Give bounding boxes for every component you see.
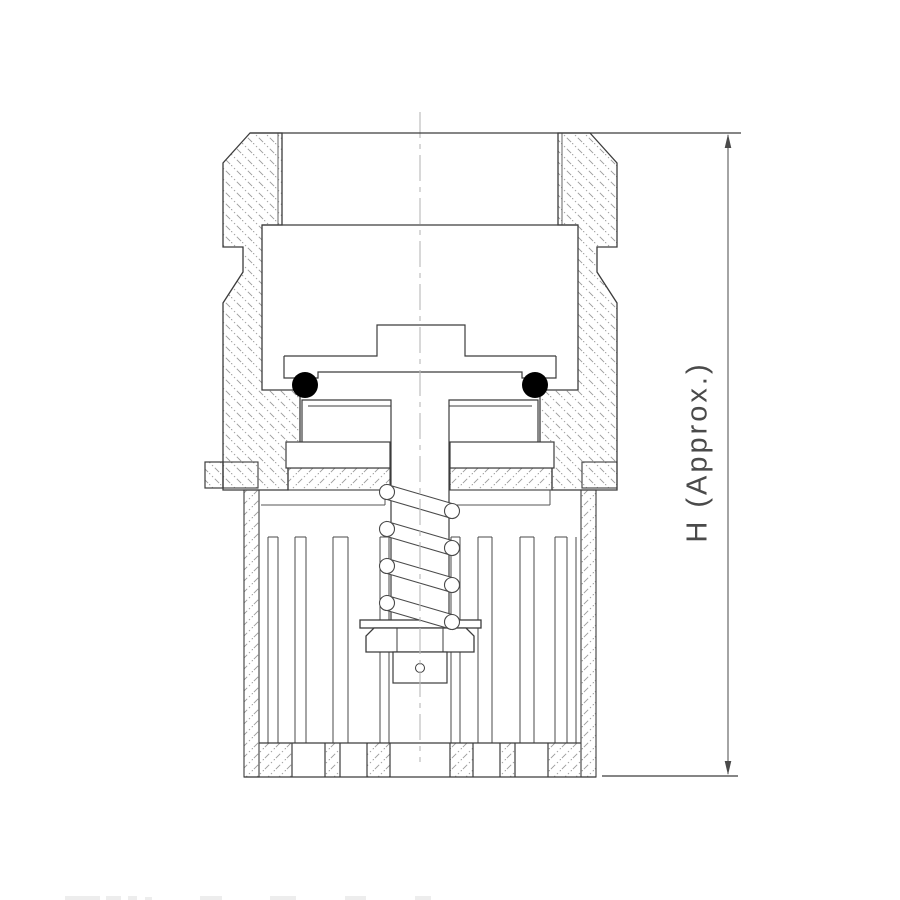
slot <box>555 537 567 743</box>
cup-wall-left <box>244 490 259 777</box>
slot <box>478 537 492 743</box>
valve-section-drawing: H (Approx.) <box>0 0 900 900</box>
slot <box>295 537 306 743</box>
drawing-canvas: H (Approx.) <box>0 0 900 900</box>
cup-wall-right <box>581 490 596 777</box>
cropped-text-artifact <box>65 896 431 900</box>
seat-band-right <box>450 468 552 490</box>
side-port-tab <box>205 462 223 488</box>
slot <box>268 537 278 743</box>
seat-band-left <box>288 468 390 490</box>
slot <box>333 537 348 743</box>
seat-ring-right <box>450 442 554 468</box>
seat-ring-left <box>286 442 390 468</box>
dimension-label: H (Approx.) <box>682 361 714 542</box>
body-left-wall <box>223 133 300 490</box>
body-right-wall <box>540 133 617 490</box>
down-arrow-icon <box>725 761 732 775</box>
o-ring-left <box>292 372 318 398</box>
o-ring-right <box>522 372 548 398</box>
slot <box>520 537 534 743</box>
up-arrow-icon <box>725 134 732 148</box>
